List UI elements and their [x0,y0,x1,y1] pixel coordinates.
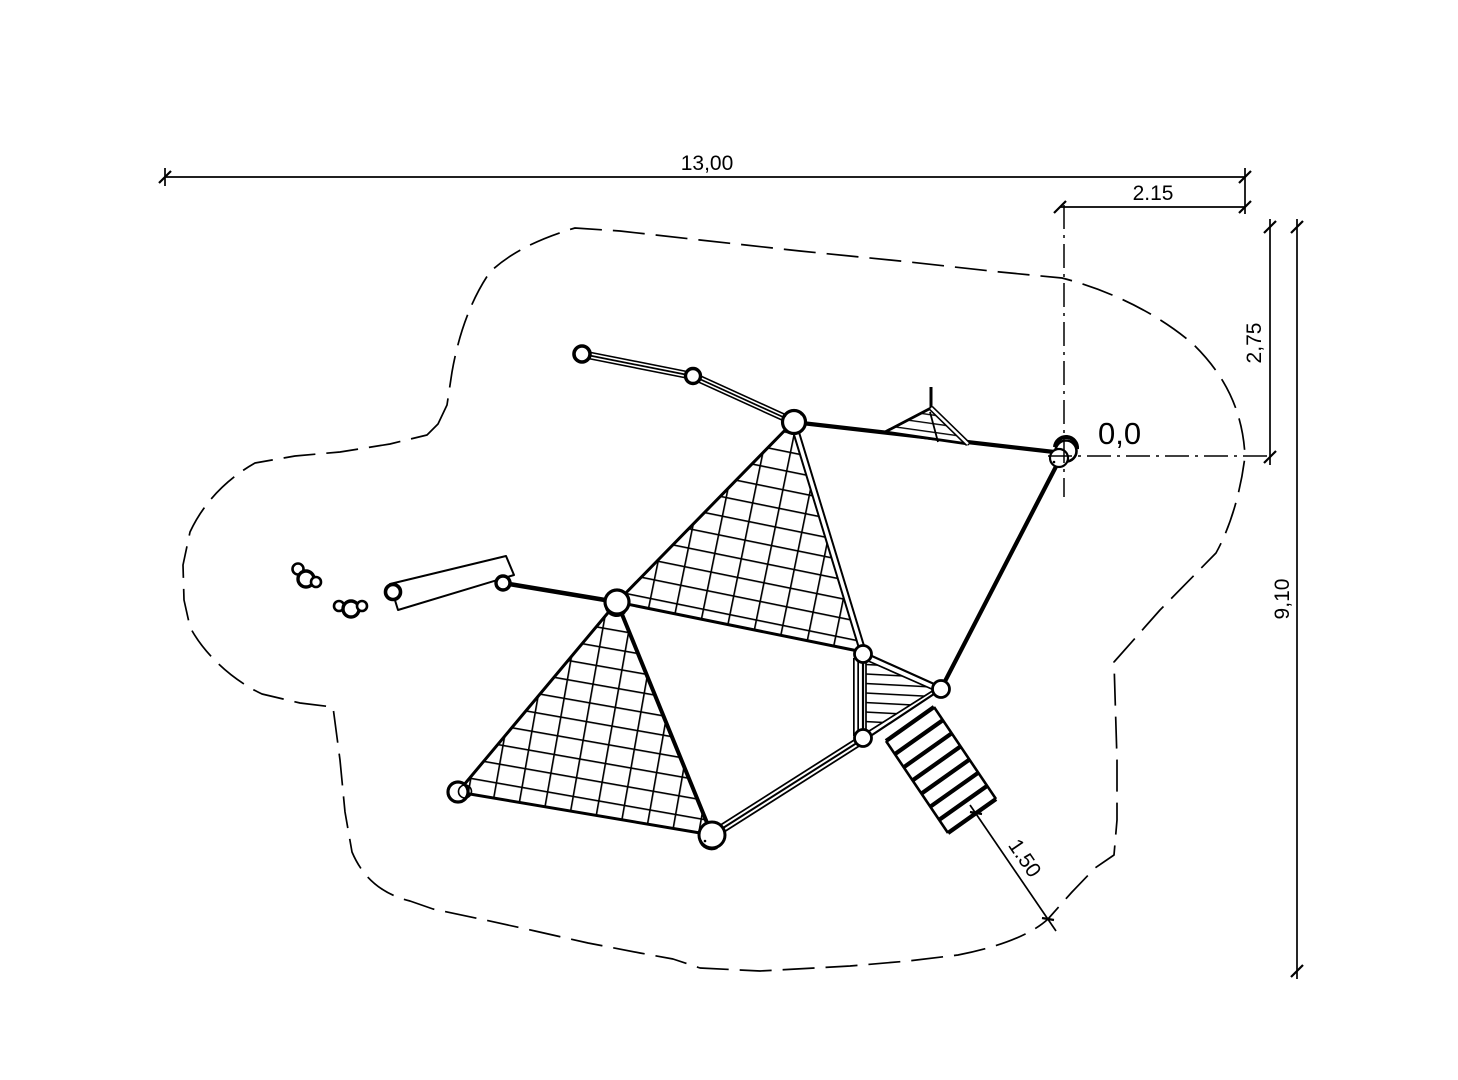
stepping-pod [357,601,367,611]
origin-pole-front [1050,449,1068,467]
stepping-pod [311,577,321,587]
origin-pole-dot [1053,461,1056,464]
origin-label: 0,0 [1098,416,1141,451]
beam-post [496,576,510,590]
platform-post [933,681,950,698]
mid-pole [605,590,629,614]
dimension-label-origin-offset-top: 2,75 [1243,323,1266,364]
dimension-label-total-height: 9,10 [1271,579,1294,620]
playground-plan-drawing: 13,00 2.15 2,75 9,10 1.50 [0,0,1458,1080]
dimension-label-total-width: 13,00 [681,152,734,175]
railing-post [574,346,590,362]
bottom-pole-dot [704,840,707,843]
platform-post [855,730,872,747]
platform-post [855,646,872,663]
site-plan-page: 13,00 2.15 2,75 9,10 1.50 [0,0,1458,1080]
beam-post [386,585,401,600]
railing-post [686,369,701,384]
dimension-label-origin-offset-right: 2.15 [1133,182,1174,205]
